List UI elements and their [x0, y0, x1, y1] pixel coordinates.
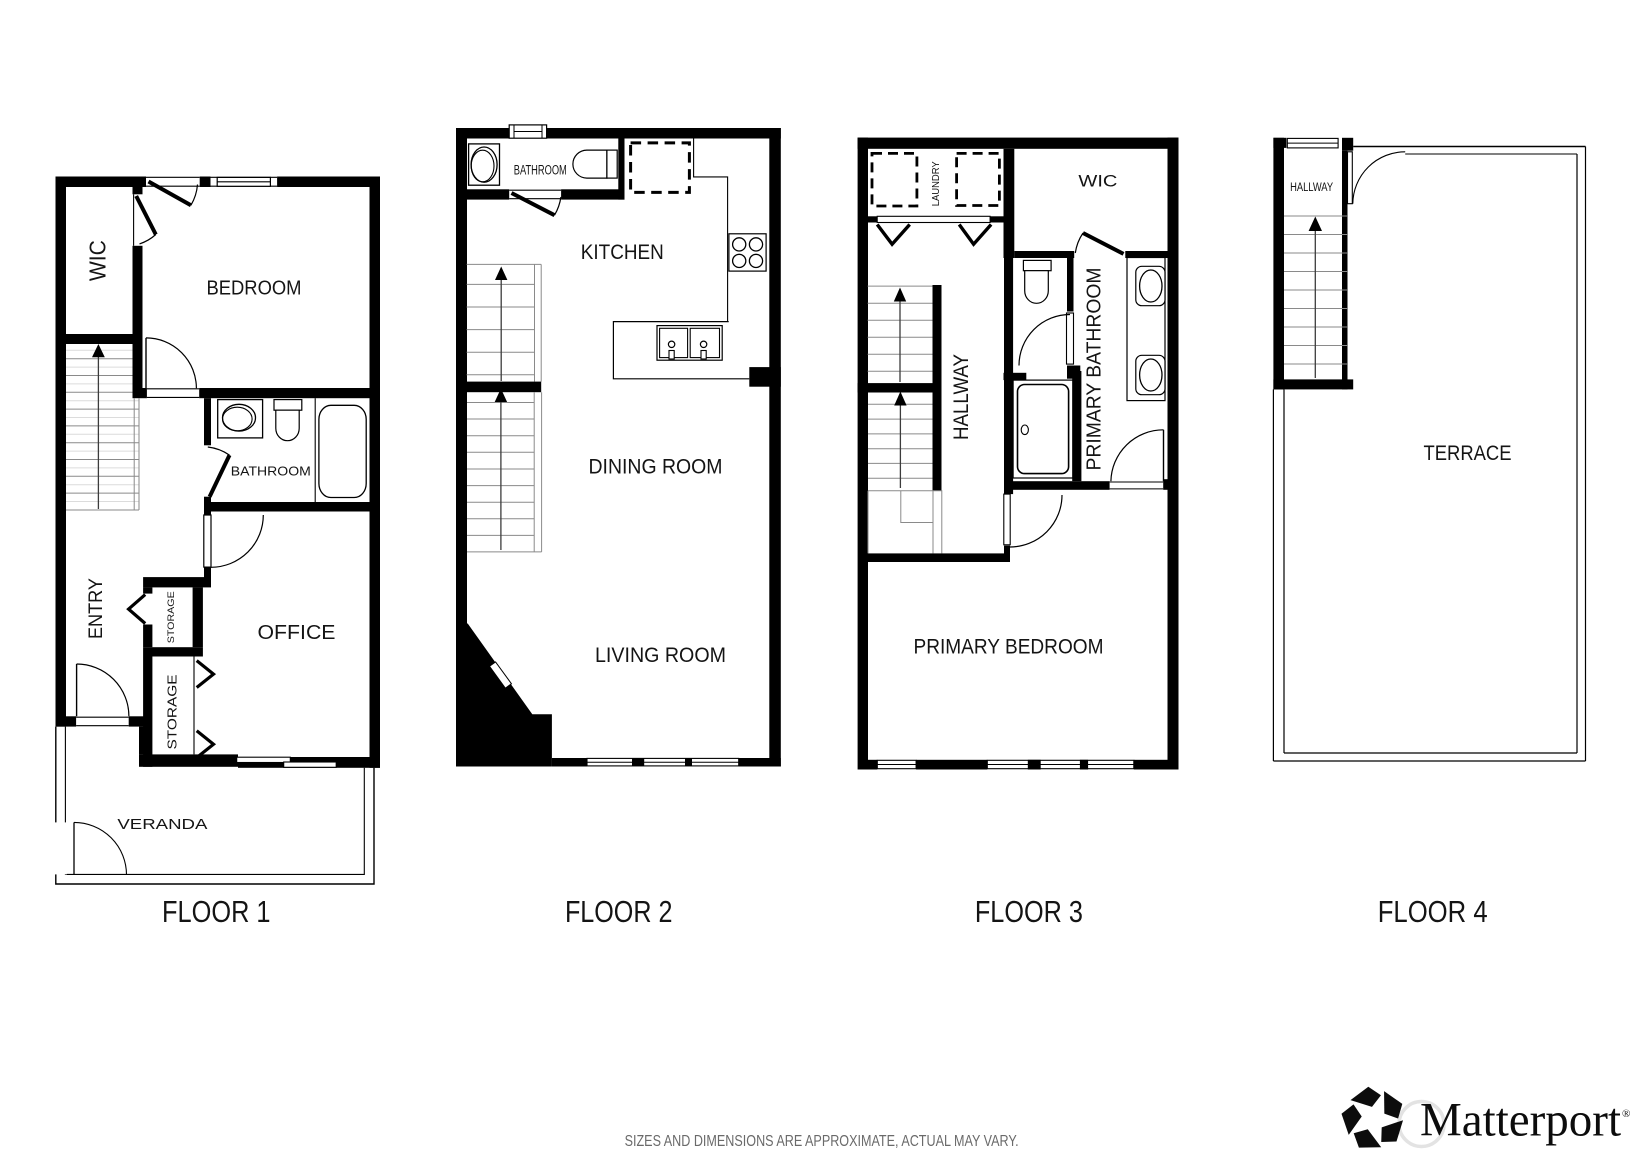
svg-text:OFFICE: OFFICE — [258, 622, 336, 644]
svg-text:FLOOR 4: FLOOR 4 — [1378, 894, 1488, 929]
svg-text:SIZES AND DIMENSIONS ARE APPRO: SIZES AND DIMENSIONS ARE APPROXIMATE, AC… — [625, 1133, 1019, 1150]
svg-text:FLOOR 1: FLOOR 1 — [162, 894, 271, 929]
svg-text:VERANDA: VERANDA — [117, 817, 207, 833]
svg-text:PRIMARY BEDROOM: PRIMARY BEDROOM — [914, 636, 1104, 659]
svg-text:FLOOR 2: FLOOR 2 — [565, 894, 673, 929]
svg-text:BATHROOM: BATHROOM — [514, 163, 567, 178]
svg-text:HALLWAY: HALLWAY — [1290, 182, 1333, 194]
svg-text:BATHROOM: BATHROOM — [231, 463, 311, 478]
svg-text:LIVING ROOM: LIVING ROOM — [595, 644, 726, 667]
svg-text:Matterport: Matterport — [1420, 1094, 1622, 1147]
svg-text:WIC: WIC — [85, 240, 111, 281]
svg-text:STORAGE: STORAGE — [166, 591, 177, 643]
svg-text:ENTRY: ENTRY — [85, 578, 107, 639]
svg-text:WIC: WIC — [1078, 171, 1117, 190]
svg-text:LAUNDRY: LAUNDRY — [930, 161, 942, 206]
svg-text:KITCHEN: KITCHEN — [581, 241, 664, 264]
svg-text:STORAGE: STORAGE — [165, 674, 180, 749]
svg-text:HALLWAY: HALLWAY — [950, 354, 973, 440]
svg-text:PRIMARY BATHROOM: PRIMARY BATHROOM — [1083, 268, 1105, 471]
svg-text:TERRACE: TERRACE — [1424, 442, 1512, 465]
svg-text:BEDROOM: BEDROOM — [207, 278, 302, 300]
svg-text:®: ® — [1622, 1108, 1630, 1120]
svg-text:DINING ROOM: DINING ROOM — [589, 456, 723, 479]
svg-text:FLOOR 3: FLOOR 3 — [975, 894, 1083, 929]
